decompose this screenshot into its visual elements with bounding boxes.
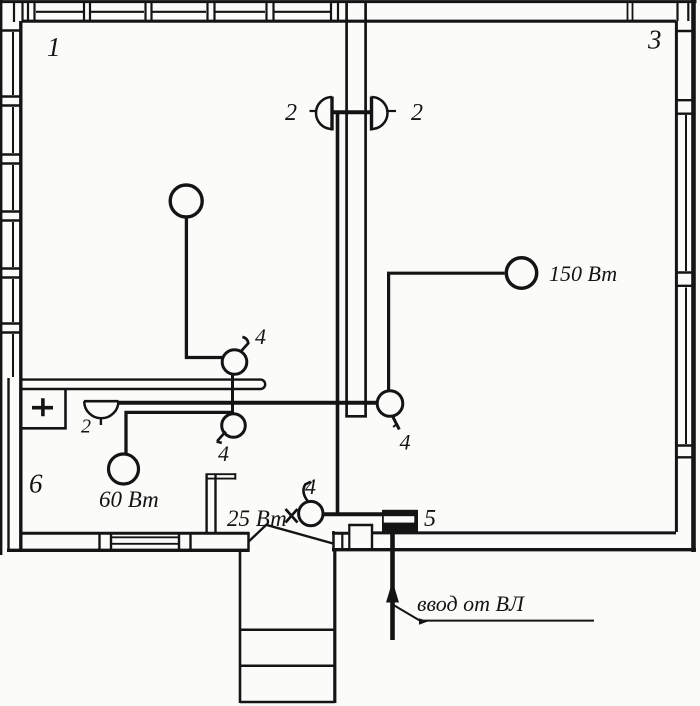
svg-text:ввод от ВЛ: ввод от ВЛ — [417, 591, 525, 616]
svg-text:25 Вт: 25 Вт — [227, 506, 287, 531]
svg-text:4: 4 — [305, 474, 316, 499]
svg-text:2: 2 — [411, 100, 423, 126]
svg-text:1: 1 — [47, 32, 61, 62]
svg-text:4: 4 — [400, 430, 411, 455]
svg-text:4: 4 — [218, 441, 229, 466]
svg-text:3: 3 — [647, 25, 662, 55]
svg-text:5: 5 — [424, 506, 436, 532]
svg-text:60 Вт: 60 Вт — [99, 487, 159, 512]
svg-text:150 Вт: 150 Вт — [549, 261, 617, 286]
svg-text:6: 6 — [29, 469, 43, 499]
svg-text:4: 4 — [255, 324, 266, 349]
svg-text:2: 2 — [81, 416, 91, 438]
svg-text:2: 2 — [285, 100, 297, 126]
